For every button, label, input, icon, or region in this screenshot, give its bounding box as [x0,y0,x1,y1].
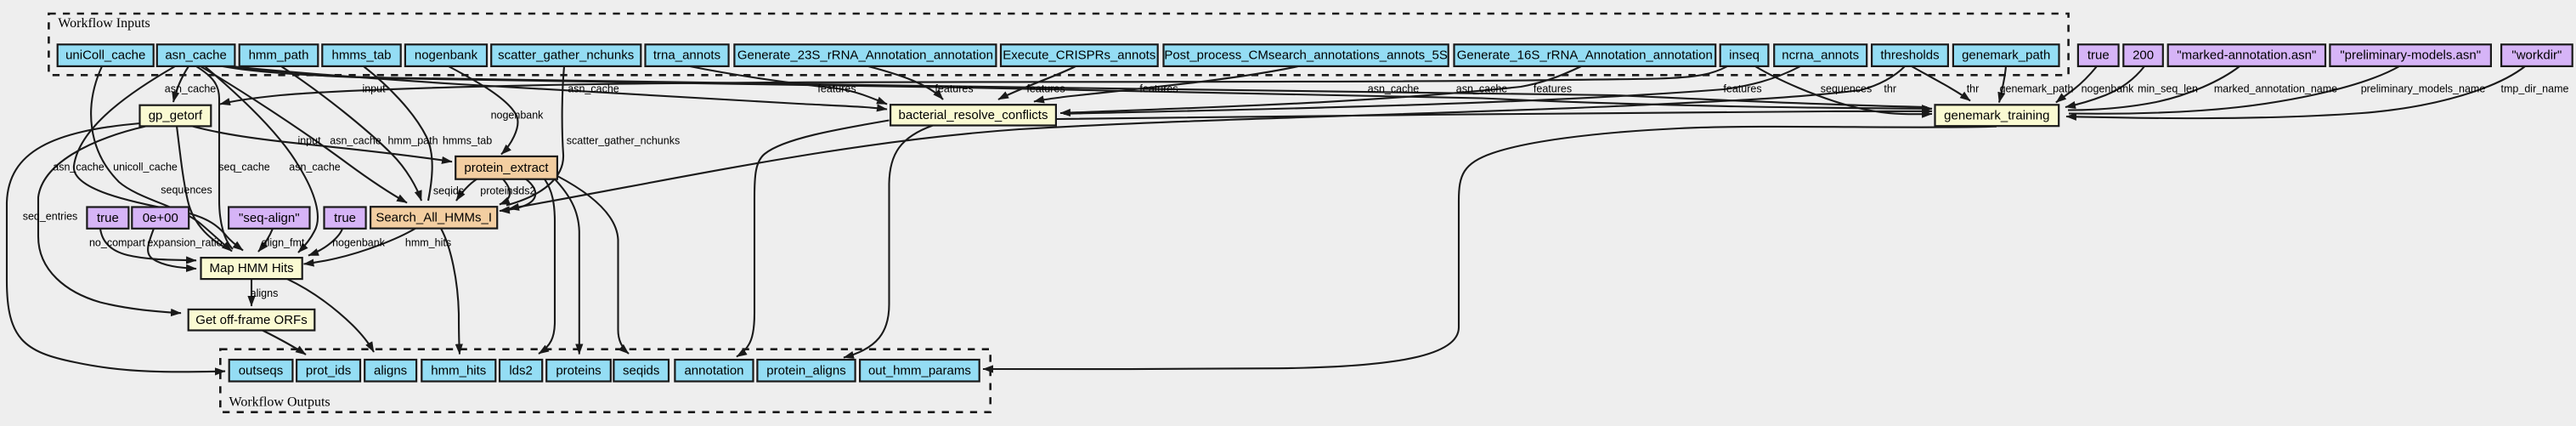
svg-text:proteins: proteins [556,363,601,378]
svg-text:seq_entries: seq_entries [23,211,78,223]
svg-text:nogenbank: nogenbank [2082,83,2135,95]
svg-text:proteins: proteins [480,185,517,197]
svg-text:200: 200 [2133,48,2154,63]
svg-text:lds2: lds2 [509,363,533,378]
svg-text:asn_cache: asn_cache [1456,83,1508,95]
svg-text:annotation: annotation [684,363,743,378]
svg-text:bacterial_resolve_conflicts: bacterial_resolve_conflicts [899,108,1048,122]
svg-text:asn_cache: asn_cache [165,83,217,95]
svg-text:features: features [1534,83,1572,95]
svg-text:unicoll_cache: unicoll_cache [113,162,178,173]
svg-text:Execute_CRISPRs_annots: Execute_CRISPRs_annots [1003,48,1155,63]
svg-text:gp_getorf: gp_getorf [149,109,203,123]
svg-text:Search_All_HMMs_I: Search_All_HMMs_I [376,211,492,225]
svg-text:min_seq_len: min_seq_len [2138,83,2198,95]
svg-text:Generate_23S_rRNA_Annotation_a: Generate_23S_rRNA_Annotation_annotation [737,48,993,63]
svg-text:0e+00: 0e+00 [143,211,178,225]
svg-text:thresholds: thresholds [1880,48,1939,63]
svg-text:marked_annotation_name: marked_annotation_name [2214,83,2337,95]
svg-text:sequences: sequences [161,185,212,196]
svg-text:seqids: seqids [433,185,464,197]
svg-text:uniColl_cache: uniColl_cache [65,48,145,63]
svg-text:tmp_dir_name: tmp_dir_name [2501,83,2569,95]
svg-text:no_compart: no_compart [89,237,146,249]
svg-text:thr: thr [1967,83,1980,95]
svg-text:scatter_gather_nchunks: scatter_gather_nchunks [567,135,680,147]
svg-text:expansion_ratio: expansion_ratio [147,237,222,249]
svg-text:asn_cache: asn_cache [165,48,227,63]
svg-text:asn_cache: asn_cache [568,83,619,95]
svg-text:Map HMM Hits: Map HMM Hits [210,261,294,275]
svg-text:"workdir": "workdir" [2511,48,2562,63]
svg-text:Get off-frame ORFs: Get off-frame ORFs [195,313,307,327]
svg-text:input: input [362,83,386,95]
svg-text:hmm_path: hmm_path [249,48,309,63]
svg-text:outseqs: outseqs [239,363,284,378]
svg-text:thr: thr [1884,83,1896,95]
svg-text:align_fmt: align_fmt [262,237,305,249]
svg-text:hmm_hits: hmm_hits [431,363,486,378]
svg-text:Workflow Inputs: Workflow Inputs [58,16,150,31]
svg-text:aligns: aligns [374,363,407,378]
svg-text:features: features [935,83,973,95]
svg-text:asn_cache: asn_cache [289,162,341,173]
svg-text:true: true [334,211,356,225]
svg-text:prot_ids: prot_ids [306,363,351,378]
svg-text:hmm_hits: hmm_hits [405,237,451,249]
svg-text:genemark_path: genemark_path [1962,48,2050,63]
svg-text:nogenbank: nogenbank [332,237,386,249]
svg-text:scatter_gather_nchunks: scatter_gather_nchunks [498,48,634,63]
svg-text:features: features [817,83,856,95]
svg-text:"seq-align": "seq-align" [239,211,300,225]
svg-text:asn_cache: asn_cache [53,162,105,173]
svg-text:Workflow Outputs: Workflow Outputs [229,395,330,409]
svg-text:out_hmm_params: out_hmm_params [868,363,971,378]
svg-text:true: true [2087,48,2110,63]
svg-text:asn_cache: asn_cache [330,135,381,147]
svg-text:true: true [97,211,119,225]
svg-text:protein_aligns: protein_aligns [766,363,845,378]
svg-text:seq_cache: seq_cache [218,162,270,173]
svg-text:asn_cache: asn_cache [1368,83,1420,95]
svg-text:input: input [297,135,321,147]
svg-text:seqids: seqids [623,363,659,378]
svg-text:nogenbank: nogenbank [415,48,478,63]
svg-text:hmms_tab: hmms_tab [443,135,492,147]
svg-text:genemark_path: genemark_path [2000,83,2074,95]
svg-text:trna_annots: trna_annots [653,48,720,63]
svg-text:features: features [1026,83,1065,95]
svg-text:Generate_16S_rRNA_Annotation_a: Generate_16S_rRNA_Annotation_annotation [1457,48,1713,63]
svg-text:genemark_training: genemark_training [1944,108,2049,122]
svg-text:lds2: lds2 [517,185,536,197]
svg-text:"marked-annotation.asn": "marked-annotation.asn" [2177,48,2316,63]
svg-text:preliminary_models_name: preliminary_models_name [2361,83,2486,95]
svg-text:"preliminary-models.asn": "preliminary-models.asn" [2340,48,2481,63]
svg-text:inseq: inseq [1729,48,1760,63]
svg-text:hmm_path: hmm_path [387,135,438,147]
svg-text:ncrna_annots: ncrna_annots [1782,48,1859,63]
svg-text:features: features [1139,83,1178,95]
svg-text:nogenbank: nogenbank [491,110,545,122]
svg-text:sequences: sequences [1821,83,1872,95]
svg-text:protein_extract: protein_extract [464,161,549,175]
svg-text:aligns: aligns [251,287,279,299]
svg-text:Post_process_CMsearch_annotati: Post_process_CMsearch_annotations_annots… [1164,48,1448,63]
svg-text:features: features [1723,83,1761,95]
svg-text:hmms_tab: hmms_tab [331,48,391,63]
